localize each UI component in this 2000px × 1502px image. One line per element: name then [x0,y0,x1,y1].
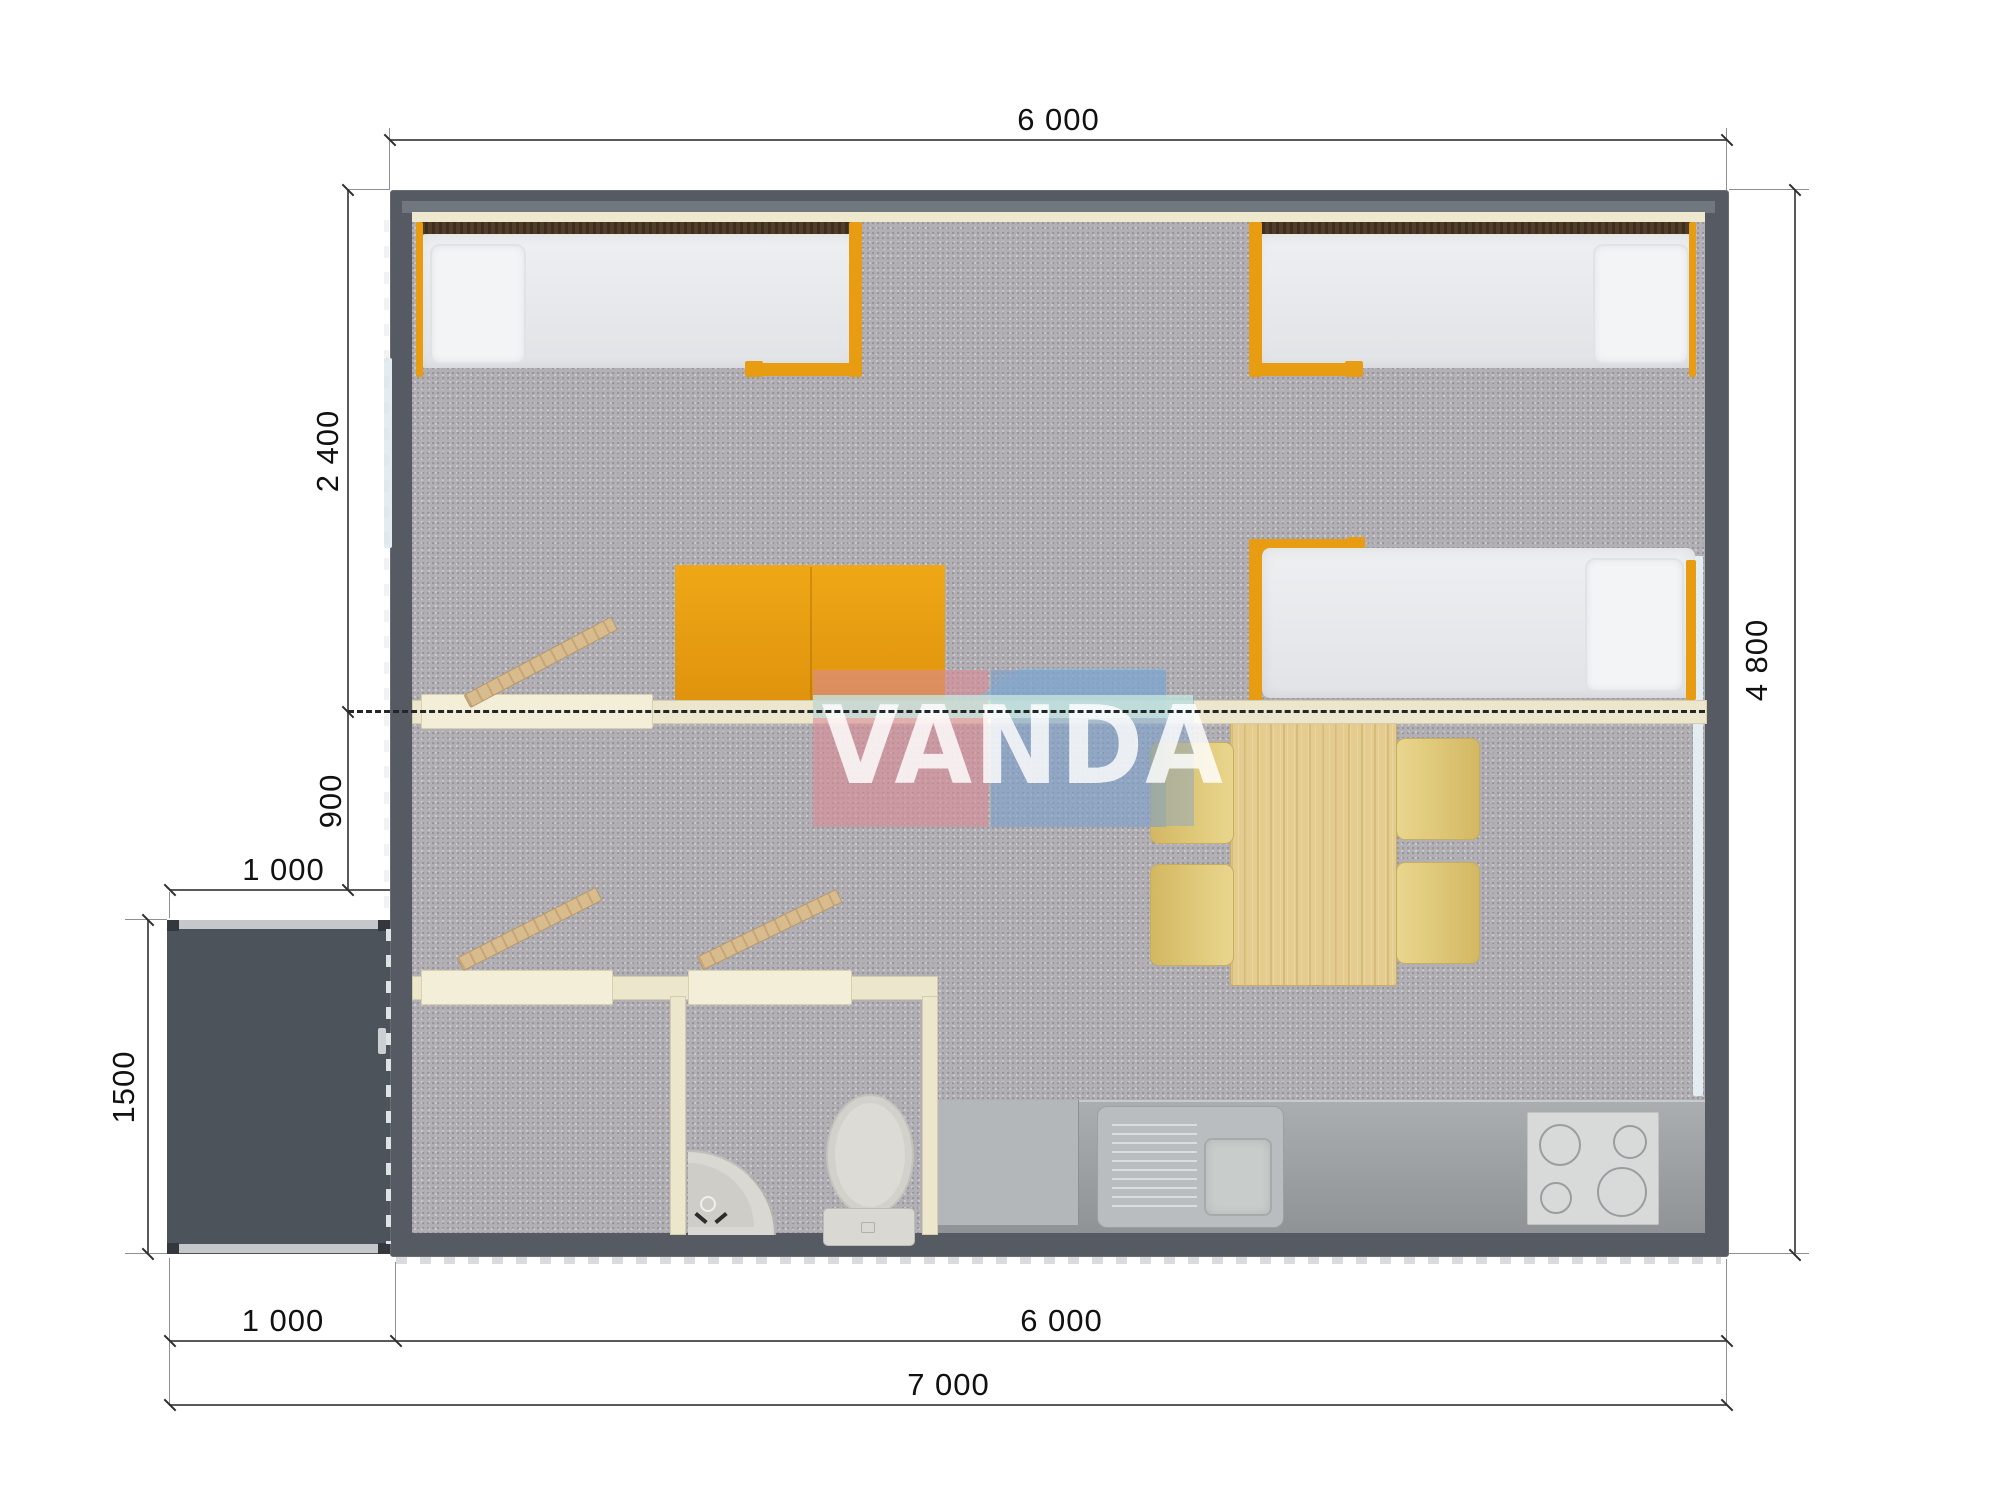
vanda-watermark: VANDA [813,668,1193,840]
stove-burner-large [1539,1124,1581,1166]
entry-door-handle [378,1028,386,1054]
bed1-frame-left [416,222,423,377]
dim-line-porch-width-top [170,889,397,891]
chair-right-bottom [1396,862,1480,964]
bed3-pillow [1585,558,1684,692]
dim-line-porch-depth [147,920,149,1254]
stove-burner-small [1613,1125,1647,1159]
porch-corner-cap [167,920,179,931]
bed1-frame-foot [762,363,862,376]
bed2-frame-corner [1345,361,1363,377]
entrance-porch [167,920,390,1254]
toilet-bowl [826,1094,914,1216]
porch-edge-beam-bottom [167,1244,390,1253]
dim-label-bottom-porch: 1 000 [170,1303,396,1339]
chair-right-top [1396,738,1480,840]
floor-plan-canvas: 6 000 4 800 2 400 900 1 000 1500 1 000 6… [0,0,2000,1502]
bed2-pillow [1593,244,1689,364]
dining-table [1230,716,1397,986]
bathroom-right-door-opening [688,970,852,1005]
watermark-logo-text: VANDA [822,690,1185,803]
dim-label-top-width: 6 000 [390,102,1727,138]
bed1-pillow [430,244,526,364]
corner-sink-faucet [700,1196,716,1212]
orange-cabinet-seam [810,567,812,703]
kitchen-sink-drainboard [1112,1124,1197,1210]
wall-panel-joints-bottom [396,1257,1721,1264]
bed2-frame-right [1689,222,1696,377]
bed3-frame-left [1249,539,1262,702]
porch-edge-beam-top [167,920,390,929]
dim-label-porch-width-top: 1 000 [170,852,397,888]
toilet-flush-button [861,1222,875,1233]
chair-left-bottom [1150,864,1234,966]
porch-corner-cap [167,1243,179,1254]
dim-ext [348,189,390,190]
dim-ext [1729,1253,1809,1254]
stove-burner-small [1540,1182,1572,1214]
bed2-frame-foot [1249,363,1349,376]
dim-label-porch-depth: 1500 [106,1017,142,1157]
bathroom-left-door-opening [421,970,613,1005]
dim-label-right-height: 4 800 [1739,590,1775,730]
wall-panel-joints-left [384,220,389,910]
dim-label-hall-depth: 900 [313,731,349,871]
kitchen-counter-cabinet [936,1100,1079,1225]
dim-line-bottom-main [396,1340,1727,1342]
bathroom-divider-wall [670,996,686,1235]
porch-door-dashed-edge [386,929,391,1244]
section-dashed-line [348,710,1705,713]
dim-label-bottom-total: 7 000 [170,1367,1727,1403]
dim-ext [169,892,170,918]
stove-burner-large [1597,1167,1647,1217]
bed1-frame-corner [745,361,763,377]
dim-line-right-height [1794,190,1796,1255]
porch-corner-cap [378,1243,390,1254]
dim-line-bottom-porch [170,1340,396,1342]
bed3-frame-right [1686,560,1696,700]
dim-line-bedroom-depth [347,190,349,712]
bed2-frame-left [1249,222,1262,377]
dim-label-bottom-main: 6 000 [396,1303,1727,1339]
top-wall-floor-plate [412,212,1705,222]
kitchen-sink-basin [1204,1138,1272,1216]
dim-line-bottom-total [170,1404,1727,1406]
dim-label-bedroom-depth: 2 400 [310,381,346,521]
bed1-frame-right [849,222,862,377]
bathroom-right-wall [922,996,938,1235]
dim-line-top-width [390,139,1727,141]
